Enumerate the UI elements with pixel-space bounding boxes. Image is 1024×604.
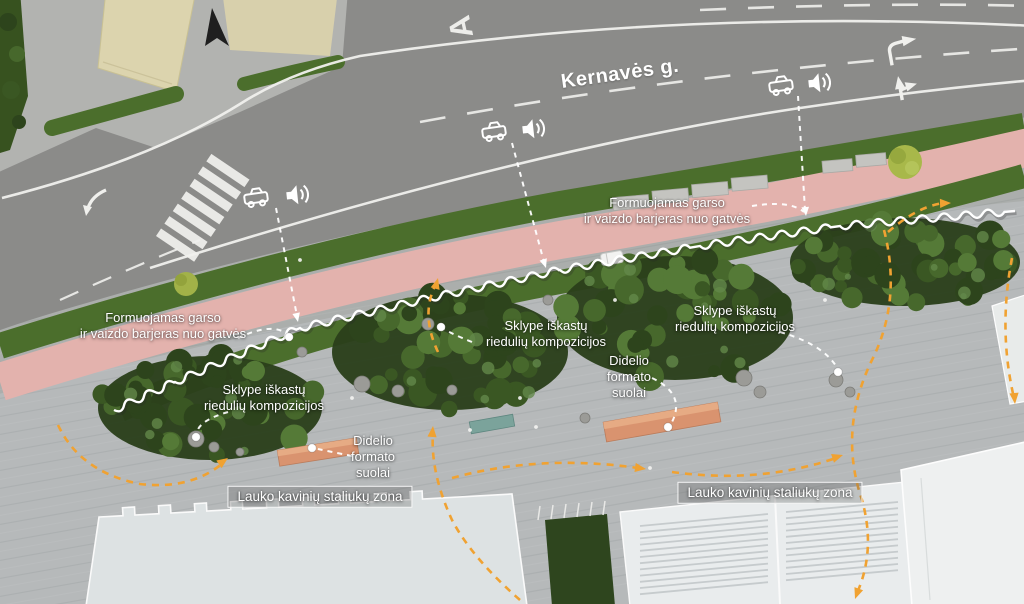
- courtyard-green: [545, 514, 615, 604]
- anchor-dot: [437, 323, 446, 332]
- anchor-dot: [664, 423, 673, 432]
- anchor-dot: [285, 333, 294, 342]
- anchor-dot: [308, 444, 317, 453]
- masterplan-render: Kernavės g. A Formuojamas garso ir vaizd…: [0, 0, 1024, 604]
- anchor-dot: [834, 368, 843, 377]
- anchor-dot: [192, 433, 201, 442]
- site-plan-canvas: [0, 0, 1024, 604]
- building-beige-2: [222, 0, 338, 56]
